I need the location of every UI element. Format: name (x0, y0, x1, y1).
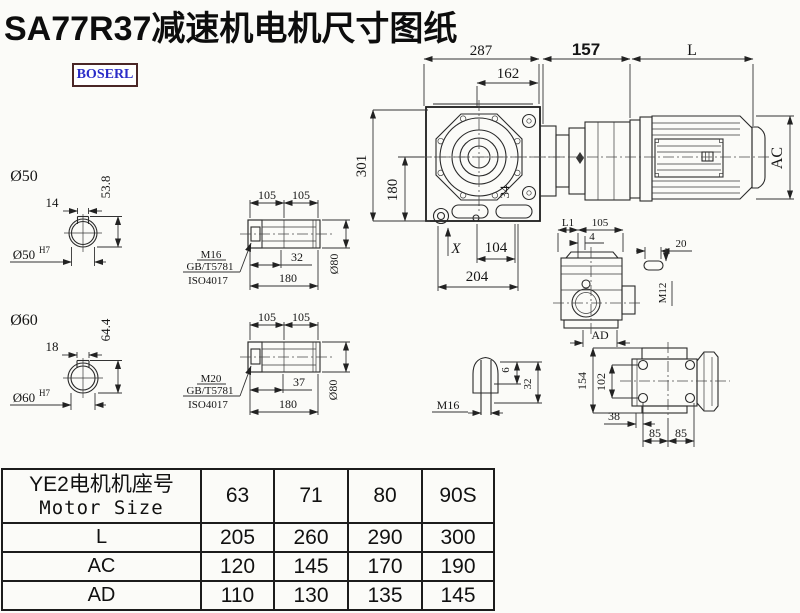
dim-85a: 85 (649, 426, 661, 440)
dim-38: 38 (608, 409, 620, 423)
screw-tip-detail: M16 6 32 (432, 358, 542, 416)
motor-size-table: YE2电机机座号 Motor Size 63 71 80 90S L 205 2… (1, 468, 495, 611)
shaft-section-60: Ø60 18 64.4 Ø60 H7 (10, 312, 122, 410)
dim-key-18: 18 (46, 339, 59, 354)
dim-104: 104 (485, 240, 508, 256)
dim-287: 287 (470, 43, 493, 59)
dim-53-8: 53.8 (98, 176, 113, 199)
dim-105-side: 105 (592, 217, 609, 229)
row-label-AC: AC (2, 552, 201, 581)
dim-32-plug: 32 (522, 379, 534, 390)
gearbox-rear-view: 154 102 38 85 85 (575, 342, 730, 447)
hollow-shaft-50: 105 105 32 180 Ø80 M16 GB/T5781 ISO4017 (183, 188, 350, 290)
label-d60h7: Ø60 (13, 390, 35, 405)
dim-180-left: 180 (385, 179, 401, 202)
dim-64-4: 64.4 (98, 318, 113, 341)
header-en: Motor Size (3, 497, 200, 519)
motor-adapter-view (556, 122, 630, 200)
label-gbt5781-b: GB/T5781 (186, 385, 233, 397)
cell-L-80: 290 (348, 523, 422, 552)
cell-AD-71: 130 (274, 581, 348, 610)
cell-AD-90s: 145 (422, 581, 494, 610)
vent-diamond-mark (576, 152, 584, 164)
cell-AC-71: 145 (274, 552, 348, 581)
table-row-L: L 205 260 290 300 (2, 523, 494, 552)
table-row-AC: AC 120 145 170 190 (2, 552, 494, 581)
label-m20-thread: M20 (201, 373, 222, 385)
col-header-80: 80 (348, 469, 422, 523)
row-label-L: L (2, 523, 201, 552)
label-d50: Ø50 (10, 168, 38, 185)
dim-162: 162 (497, 66, 520, 82)
label-m16-thread: M16 (201, 249, 222, 261)
dim-157: 157 (572, 40, 600, 59)
dim-AC: AC (769, 147, 786, 169)
motor-nameplate (702, 152, 713, 161)
dim-6: 6 (500, 367, 512, 373)
dim-154: 154 (575, 372, 589, 390)
cell-AC-63: 120 (201, 552, 274, 581)
dim-AD: AD (591, 328, 609, 342)
label-iso4017-a: ISO4017 (188, 275, 228, 287)
main-view-dimensions: 287 162 157 L AC 301 180 X 104 (354, 40, 794, 291)
dim-301: 301 (354, 155, 370, 178)
key-m12-detail: 20 M12 (636, 238, 692, 306)
cell-L-63: 205 (201, 523, 274, 552)
dim-105d: 105 (292, 310, 310, 324)
table-row-AD: AD 110 130 135 145 (2, 581, 494, 610)
dim-85b: 85 (675, 426, 687, 440)
label-m12: M12 (657, 283, 669, 304)
cell-AD-80: 135 (348, 581, 422, 610)
dim-20: 20 (676, 238, 688, 250)
cell-L-90s: 300 (422, 523, 494, 552)
dim-X: X (450, 241, 461, 257)
label-m16-plug: M16 (437, 398, 460, 412)
dim-L1: L1 (562, 217, 574, 229)
table-header-row: YE2电机机座号 Motor Size 63 71 80 90S (2, 469, 494, 523)
label-iso4017-b: ISO4017 (188, 399, 228, 411)
dim-key-14: 14 (46, 195, 60, 210)
dim-180b: 180 (279, 397, 297, 411)
motor-view (416, 116, 772, 201)
col-header-71: 71 (274, 469, 348, 523)
cell-AC-80: 170 (348, 552, 422, 581)
dim-37: 37 (293, 375, 305, 389)
cell-AD-63: 110 (201, 581, 274, 610)
table-header-motor-size: YE2电机机座号 Motor Size (2, 469, 201, 523)
label-d60: Ø60 (10, 312, 38, 329)
label-d60h7-tol: H7 (39, 388, 50, 398)
dim-34: 34 (497, 185, 512, 199)
header-cn: YE2电机机座号 (3, 473, 200, 497)
drawing-sheet: SA77R37减速机电机尺寸图纸 BOSERL (0, 0, 800, 613)
label-gbt5781-a: GB/T5781 (186, 261, 233, 273)
dim-32: 32 (291, 250, 303, 264)
dim-105c: 105 (258, 310, 276, 324)
shaft-section-50: Ø50 14 53.8 Ø50 H7 (10, 168, 122, 266)
cell-L-71: 260 (274, 523, 348, 552)
dim-102: 102 (594, 373, 608, 391)
dim-4: 4 (589, 231, 595, 243)
col-header-63: 63 (201, 469, 274, 523)
dim-L: L (687, 42, 697, 59)
dim-204: 204 (466, 269, 489, 285)
label-d50h7-tol: H7 (39, 245, 50, 255)
gearbox-side-view: L1 105 4 AD (553, 217, 642, 347)
label-d50h7: Ø50 (13, 247, 35, 262)
dim-d80a: Ø80 (327, 254, 341, 275)
dim-180a: 180 (279, 271, 297, 285)
hollow-shaft-60: 105 105 37 180 Ø80 M20 GB/T5781 ISO4017 (183, 310, 350, 415)
dim-105a: 105 (258, 188, 276, 202)
cell-AC-90s: 190 (422, 552, 494, 581)
row-label-AD: AD (2, 581, 201, 610)
dim-d80b: Ø80 (326, 380, 340, 401)
col-header-90s: 90S (422, 469, 494, 523)
gearbox-front-view (420, 100, 566, 224)
dim-105b: 105 (292, 188, 310, 202)
